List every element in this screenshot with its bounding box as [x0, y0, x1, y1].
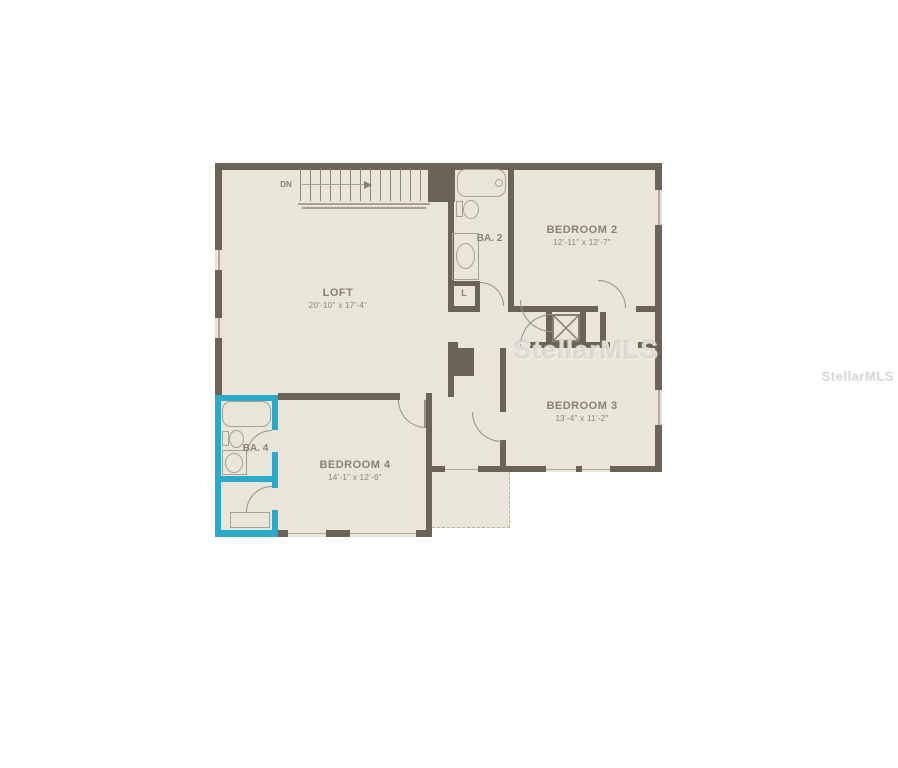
- floor-plan-image: DN LOFT 20'-10" x 17'-4" BEDROOM 2 12'-1…: [0, 0, 898, 768]
- linen-label: L: [452, 288, 476, 298]
- wall-bath4-right-mid: [272, 452, 278, 478]
- wall-chase-block: [452, 348, 474, 376]
- window-bedroom3-2: [546, 469, 576, 471]
- stairs-dn-label: DN: [272, 180, 300, 189]
- window-bedroom3-3: [582, 469, 610, 471]
- floor-extension-dashed: [432, 472, 510, 528]
- wall-bedroom3-bottom-c: [610, 466, 662, 472]
- door-leaf-bedroom4: [424, 400, 426, 428]
- wall-bedroom3-left-upper: [500, 348, 506, 412]
- bedroom4-dims: 14'-1" x 12'-6": [285, 473, 425, 482]
- bedroom2-label: BEDROOM 2: [512, 224, 652, 236]
- wall-closet4-right-stub: [272, 476, 278, 488]
- wall-right-a: [655, 163, 662, 190]
- stair-direction-line: [302, 184, 364, 185]
- wall-left-c: [215, 338, 222, 395]
- window-bedroom4-1: [288, 533, 326, 535]
- wall-left-a: [215, 163, 222, 250]
- wall-bedroom4-bottom-a: [278, 530, 288, 537]
- watermark-right: StellarMLS: [822, 369, 894, 384]
- sink4-icon: [225, 453, 243, 473]
- stair-stringer-2: [302, 207, 426, 209]
- watermark-center: StellarMLS: [514, 335, 659, 366]
- toilet2-tank-icon: [456, 201, 463, 217]
- wall-bath4-bottom: [215, 530, 278, 537]
- window-left-1: [218, 250, 220, 270]
- stair-stringer-1: [298, 203, 430, 205]
- wall-loft-east: [448, 348, 454, 397]
- closet4-shelf-icon: [230, 512, 270, 528]
- wall-left-b: [215, 270, 222, 318]
- wall-bath4-right-upper: [272, 395, 278, 430]
- wall-bath4-divider: [215, 476, 278, 482]
- bedroom3-label: BEDROOM 3: [512, 400, 652, 412]
- window-right-1: [658, 190, 660, 225]
- bedroom2-dims: 12'-11" x 12'-7": [512, 238, 652, 247]
- window-bedroom4-2: [350, 533, 416, 535]
- wall-bedroom4-bottom-c: [416, 530, 432, 537]
- wall-bedroom4-top: [278, 393, 400, 400]
- wall-bedroom4-bottom-b: [326, 530, 350, 537]
- wall-bedroom2-bottom-b: [636, 306, 662, 312]
- loft-dims: 20'-10" x 17'-4": [268, 301, 408, 310]
- bathtub4-icon: [222, 401, 271, 427]
- bedroom3-dims: 13'-4" x 11'-2": [512, 414, 652, 423]
- stair-arrow-icon: [364, 181, 372, 189]
- window-right-2: [658, 390, 660, 425]
- bedroom4-label: BEDROOM 4: [285, 459, 425, 471]
- wall-bedroom3-left-lower: [500, 440, 506, 467]
- wall-bedroom3-bottom-a: [432, 466, 445, 472]
- loft-label: LOFT: [268, 287, 408, 299]
- window-left-2: [218, 318, 220, 338]
- bathtub2-faucet-icon: [495, 179, 503, 187]
- sink2-icon: [456, 243, 475, 269]
- wall-linen-bottom: [448, 306, 480, 312]
- bath2-label: BA. 2: [462, 233, 517, 244]
- wall-right-c: [655, 425, 662, 472]
- wall-bath4-left: [215, 395, 221, 537]
- bath4-label: BA. 4: [228, 443, 283, 454]
- wall-bedroom4-right: [426, 393, 432, 537]
- window-bedroom3-1: [445, 469, 478, 471]
- toilet2-bowl-icon: [463, 200, 479, 219]
- wall-bedroom3-bottom-b: [478, 466, 546, 472]
